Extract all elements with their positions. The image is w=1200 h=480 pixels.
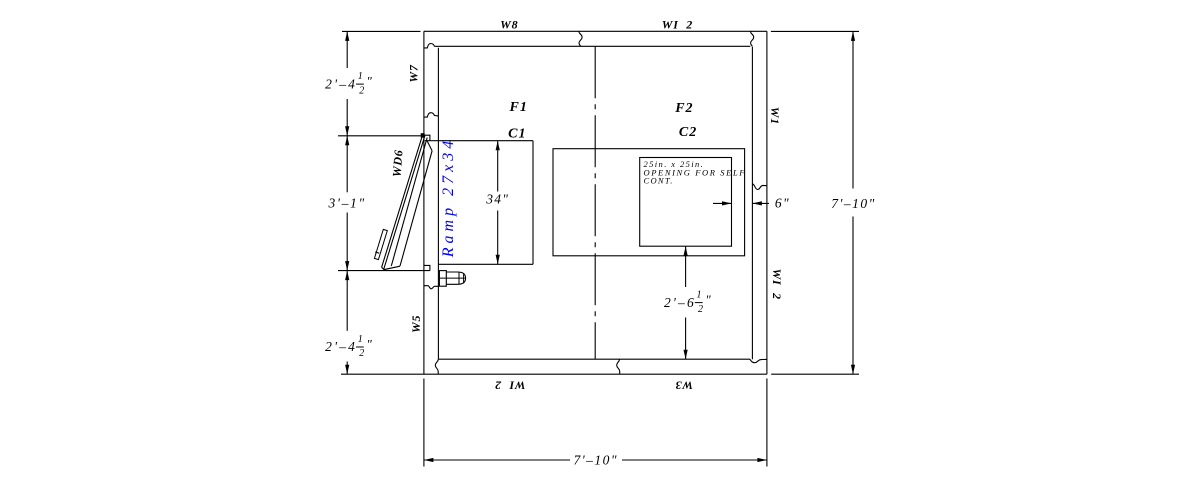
svg-text:WI 2: WI 2 — [494, 378, 525, 392]
svg-text:C2: C2 — [679, 125, 697, 140]
svg-text:Ramp 27x34: Ramp 27x34 — [440, 137, 457, 258]
svg-text:WI 2: WI 2 — [770, 269, 784, 300]
svg-text:W3: W3 — [675, 378, 693, 392]
svg-text:W5: W5 — [409, 315, 423, 333]
svg-text:W8: W8 — [500, 17, 518, 31]
svg-text:2'–4: 2'–4 — [325, 76, 357, 91]
svg-text:F2: F2 — [674, 101, 693, 116]
svg-text:2: 2 — [359, 348, 364, 359]
svg-text:WD6: WD6 — [390, 149, 406, 178]
svg-text:2'–4: 2'–4 — [325, 339, 357, 354]
svg-text:3'–1": 3'–1" — [328, 196, 366, 211]
svg-text:W7: W7 — [407, 64, 421, 82]
svg-text:": " — [705, 292, 711, 307]
svg-text:7'–10": 7'–10" — [831, 196, 876, 211]
svg-text:2: 2 — [359, 85, 364, 96]
svg-text:F1: F1 — [509, 100, 528, 115]
svg-text:2'–6: 2'–6 — [664, 295, 696, 310]
svg-text:C1: C1 — [508, 127, 526, 142]
svg-text:6": 6" — [775, 196, 790, 211]
svg-text:1: 1 — [697, 290, 702, 301]
svg-text:1: 1 — [358, 334, 363, 345]
svg-text:": " — [366, 337, 372, 352]
svg-text:": " — [366, 74, 372, 89]
svg-text:CONT.: CONT. — [644, 176, 674, 186]
svg-text:2: 2 — [698, 304, 703, 315]
svg-text:W1: W1 — [768, 107, 782, 125]
svg-text:34": 34" — [485, 192, 509, 207]
svg-text:7'–10": 7'–10" — [574, 453, 619, 468]
svg-text:WI 2: WI 2 — [662, 17, 693, 31]
svg-text:1: 1 — [358, 71, 363, 82]
